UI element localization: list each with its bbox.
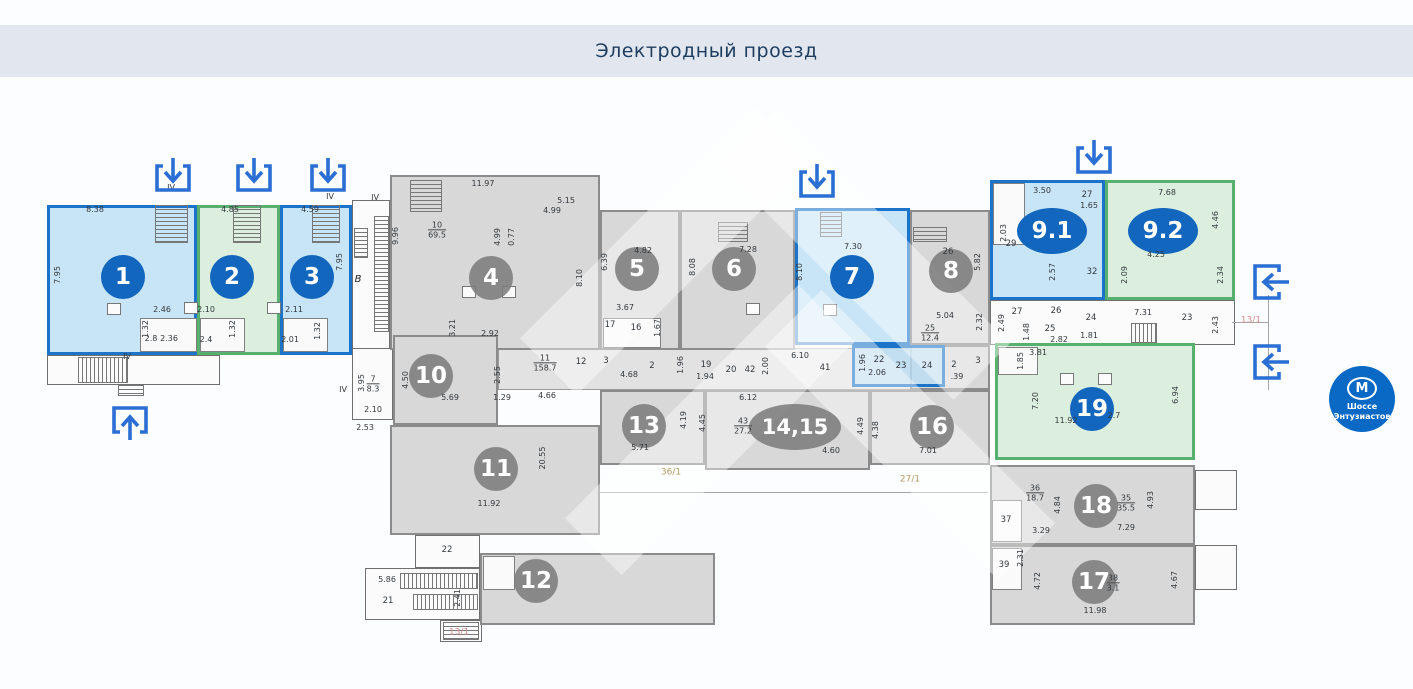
dim-label: 7.31 (1134, 309, 1152, 317)
unit-badge-16[interactable]: 16 (910, 405, 954, 449)
room-number: 16 (631, 324, 642, 333)
dim-label: 2.36 (160, 335, 178, 343)
dim-label: 8.10 (796, 263, 804, 281)
dim-label: 3.67 (616, 304, 634, 312)
room-area: 158.7 (534, 364, 557, 373)
unit-badge-3[interactable]: 3 (290, 255, 334, 299)
dim-label: 4.99 (494, 228, 502, 246)
dim-label: 2.00 (762, 357, 770, 375)
dim-label: 4.50 (402, 371, 410, 389)
stairs (354, 228, 368, 258)
stairs (118, 385, 144, 396)
unit-badge-7[interactable]: 7 (830, 255, 874, 299)
dim-label: 8.10 (576, 269, 584, 287)
dim-label: 3.95 (358, 374, 366, 392)
room-number: 2 (649, 362, 654, 371)
room-area-label: 3618.7 (1026, 483, 1044, 502)
utility-room (483, 556, 515, 590)
room-area: 69.5 (428, 231, 446, 240)
dim-label: 4.82 (634, 247, 652, 255)
plot-number-label: 27/1 (900, 476, 920, 485)
room-number: 21 (383, 597, 394, 606)
stairs (413, 594, 478, 610)
unit-badge-1[interactable]: 1 (101, 255, 145, 299)
dim-label: 1.67 (654, 319, 662, 337)
dim-label: 7.01 (919, 447, 937, 455)
room-number: 25 (921, 323, 939, 333)
entrance-arrow-up-icon (109, 397, 151, 441)
dim-label: 5.15 (557, 197, 575, 205)
stairs (1131, 323, 1157, 343)
dim-label: 4.49 (857, 417, 865, 435)
dim-label: 11.98 (1084, 607, 1107, 615)
stairs (913, 227, 947, 242)
page: Электродный проезд 123456789.19.21011121… (0, 0, 1413, 689)
room-number: 22 (442, 546, 453, 555)
dim-label: 2.55 (494, 366, 502, 384)
stairs (410, 180, 442, 212)
unit-badge-4[interactable]: 4 (469, 256, 513, 300)
dim-label: 2.06 (868, 369, 886, 377)
room-number: 24 (922, 362, 933, 371)
dim-label: 2.46 (153, 306, 171, 314)
dim-label: 2.41 (454, 589, 462, 607)
column-marker (823, 304, 837, 316)
dim-label: 3.29 (1032, 527, 1050, 535)
room-number: 27 (1012, 308, 1023, 317)
room-area: 18.7 (1026, 494, 1044, 503)
dim-label: 8.38 (86, 206, 104, 214)
room-number: 32 (1087, 268, 1098, 277)
unit-badge-18[interactable]: 18 (1074, 484, 1118, 528)
room-area: 35.5 (1117, 504, 1135, 513)
dim-label: 20.55 (539, 447, 547, 470)
dim-label: 2.43 (1212, 316, 1220, 334)
dim-label: 4.38 (872, 421, 880, 439)
dim-label: 2.57 (1049, 263, 1057, 281)
dim-label: 4.59 (301, 206, 319, 214)
dim-label: 3.21 (449, 319, 457, 337)
column-marker (184, 302, 198, 314)
entrance-arrow-left-icon (1246, 261, 1288, 305)
dim-label: 2.11 (285, 306, 303, 314)
room-number: 24 (1086, 314, 1097, 323)
room-number: 17 (605, 321, 616, 330)
dim-label: 4.84 (1054, 496, 1062, 514)
dim-label: 7.95 (336, 253, 344, 271)
room-number: 23 (1182, 314, 1193, 323)
room-number: 37 (1001, 516, 1012, 525)
dim-label: 4.46 (1212, 211, 1220, 229)
dim-label: 2.01 (281, 336, 299, 344)
dim-label: 2.32 (976, 313, 984, 331)
room-number: 35 (1117, 493, 1135, 503)
dim-label: 2.49 (998, 314, 1006, 332)
unit-badge-12[interactable]: 12 (514, 559, 558, 603)
column-marker (746, 303, 760, 315)
dim-label: 2.10 (364, 406, 382, 414)
plot-number-label: 13/1 (1241, 317, 1261, 326)
dim-label: 8.08 (689, 258, 697, 276)
room-number: 26 (1051, 307, 1062, 316)
dim-label: 4.93 (1147, 491, 1155, 509)
room-area-label: 78.3 (367, 374, 380, 393)
dim-label: 7.29 (1117, 524, 1135, 532)
dim-label: 4.99 (543, 207, 561, 215)
entrance-arrow-down-icon (307, 157, 349, 201)
dim-label: 5.82 (974, 253, 982, 271)
column-marker (1060, 373, 1074, 385)
dim-label: 4.19 (680, 411, 688, 429)
room-number: 43 (734, 416, 752, 426)
dim-label: 6.39 (601, 253, 609, 271)
dim-label: 4.85 (221, 206, 239, 214)
dim-label: 2.82 (1050, 336, 1068, 344)
dim-label: 2.10 (197, 306, 215, 314)
metro-station-name: Шоссе Энтузиастов (1334, 402, 1391, 421)
plot-line (600, 492, 988, 493)
dim-label: 5.69 (441, 394, 459, 402)
metro-station-badge[interactable]: М Шоссе Энтузиастов (1329, 366, 1395, 432)
plan-area (1195, 545, 1237, 590)
room-number: 36 (1026, 483, 1044, 493)
dim-label: 7.95 (54, 266, 62, 284)
dim-label: 1.81 (1080, 332, 1098, 340)
dim-label: 7.30 (844, 243, 862, 251)
dim-label: 2.31 (1017, 549, 1025, 567)
dim-label: 5.04 (936, 312, 954, 320)
dim-label: 6.94 (1172, 386, 1180, 404)
dim-label: 4.25 (1147, 251, 1165, 259)
room-number: 26 (943, 248, 954, 257)
room-number: 29 (1006, 240, 1017, 249)
room-number: 2 (951, 361, 956, 370)
metro-letter: М (1356, 382, 1369, 395)
stairs (820, 212, 842, 237)
room-area-label: 11158.7 (534, 353, 557, 372)
dim-label: 5.71 (631, 444, 649, 452)
plan-area (1195, 470, 1237, 510)
room-number: 10 (428, 220, 446, 230)
metro-name-line1: Шоссе (1334, 402, 1391, 412)
entrance-arrow-down-icon (152, 157, 194, 201)
dim-label: 9.96 (392, 227, 400, 245)
dim-label: 5.86 (378, 576, 396, 584)
dim-label: 1.85 (1017, 352, 1025, 370)
stairs (78, 357, 128, 383)
dim-label: 7.68 (1158, 189, 1176, 197)
column-marker (267, 302, 281, 314)
dim-label: 1.96 (859, 354, 867, 372)
dim-label: 4.72 (1034, 572, 1042, 590)
plot-number-label: 36/1 (661, 469, 681, 478)
dim-label: 4.67 (1171, 571, 1179, 589)
stairs (400, 573, 478, 589)
room-area: 3.1 (1107, 584, 1120, 593)
dim-label: 0.77 (508, 228, 516, 246)
dim-label: В (355, 275, 362, 285)
dim-label: IV (123, 353, 131, 361)
dim-label: 4.66 (538, 392, 556, 400)
room-number: 25 (1045, 325, 1056, 334)
room-number: 22 (874, 356, 885, 365)
room-number: 41 (820, 364, 831, 373)
dim-label: 2.4 (200, 336, 213, 344)
room-area: 27.2 (734, 427, 752, 436)
entrance-arrow-left-icon (1246, 341, 1288, 385)
dim-label: 1.32 (229, 320, 237, 338)
unit-badge-14,15[interactable]: 14,15 (749, 404, 841, 450)
room-area-label: 3535.5 (1117, 493, 1135, 512)
room-number: 11 (534, 353, 557, 363)
column-marker (1098, 373, 1112, 385)
dim-label: 3.81 (1029, 349, 1047, 357)
unit-badge-11[interactable]: 11 (474, 447, 518, 491)
room-area: 12.4 (921, 334, 939, 343)
metro-name-line2: Энтузиастов (1334, 412, 1391, 422)
dim-label: IV (371, 194, 379, 202)
room-number: 20 (726, 366, 737, 375)
floor-plan: 123456789.19.21011121314,15161718198.387… (0, 0, 1413, 689)
stairs (155, 205, 188, 243)
dim-label: 1.32 (314, 322, 322, 340)
metro-logo-icon: М (1347, 377, 1377, 400)
dim-label: 2.53 (356, 424, 374, 432)
room-number: 38 (1107, 573, 1120, 583)
dim-label: .39 (951, 373, 964, 381)
dim-label: IV (339, 386, 347, 394)
dim-label: 2.92 (481, 330, 499, 338)
unit-badge-9.2[interactable]: 9.2 (1128, 208, 1198, 254)
column-marker (107, 303, 121, 315)
dim-label: 1.48 (1023, 323, 1031, 341)
room-number: 42 (745, 366, 756, 375)
dim-label: 11.92 (1055, 417, 1078, 425)
dim-label: 11.92 (478, 500, 501, 508)
room-area-label: 383.1 (1107, 573, 1120, 592)
room-number: 27 (1082, 191, 1093, 200)
dim-label: 1.94 (696, 373, 714, 381)
dim-label: 1.29 (493, 394, 511, 402)
unit-badge-10[interactable]: 10 (409, 354, 453, 398)
dim-label: 4.60 (822, 447, 840, 455)
room-number: 3 (975, 357, 980, 366)
dim-label: 6.12 (739, 394, 757, 402)
unit-badge-13[interactable]: 13 (622, 404, 666, 448)
dim-label: 2.09 (1121, 266, 1129, 284)
room-number: 12 (576, 358, 587, 367)
room-area-label: 2512.4 (921, 323, 939, 342)
unit-badge-2[interactable]: 2 (210, 255, 254, 299)
stairs (718, 222, 748, 242)
room-number: 19 (701, 361, 712, 370)
plan-area (47, 355, 220, 385)
dim-label: 6.10 (791, 352, 809, 360)
dim-label: 4.45 (699, 414, 707, 432)
dim-label: 1.96 (677, 356, 685, 374)
plot-number-label: 13/1 (449, 629, 469, 638)
dim-label: 7.20 (1032, 392, 1040, 410)
dim-label: 2.8 (145, 335, 158, 343)
room-number: 3 (603, 357, 608, 366)
stairs (374, 216, 389, 332)
room-number: 39 (999, 561, 1010, 570)
unit-badge-9.1[interactable]: 9.1 (1017, 208, 1087, 254)
room-area-label: 1069.5 (428, 220, 446, 239)
dim-label: 2.7 (1108, 412, 1121, 420)
dim-label: 3.50 (1033, 187, 1051, 195)
room-area: 8.3 (367, 385, 380, 394)
dim-label: 1.65 (1080, 202, 1098, 210)
entrance-arrow-down-icon (1073, 139, 1115, 183)
room-area-label: 4327.2 (734, 416, 752, 435)
dim-label: 2.34 (1217, 266, 1225, 284)
room-number: 7 (367, 374, 380, 384)
dim-label: 4.68 (620, 371, 638, 379)
room-number: 23 (896, 362, 907, 371)
entrance-arrow-down-icon (233, 157, 275, 201)
dim-label: 7.28 (739, 246, 757, 254)
dim-label: 11.97 (472, 180, 495, 188)
entrance-arrow-down-icon (796, 163, 838, 207)
